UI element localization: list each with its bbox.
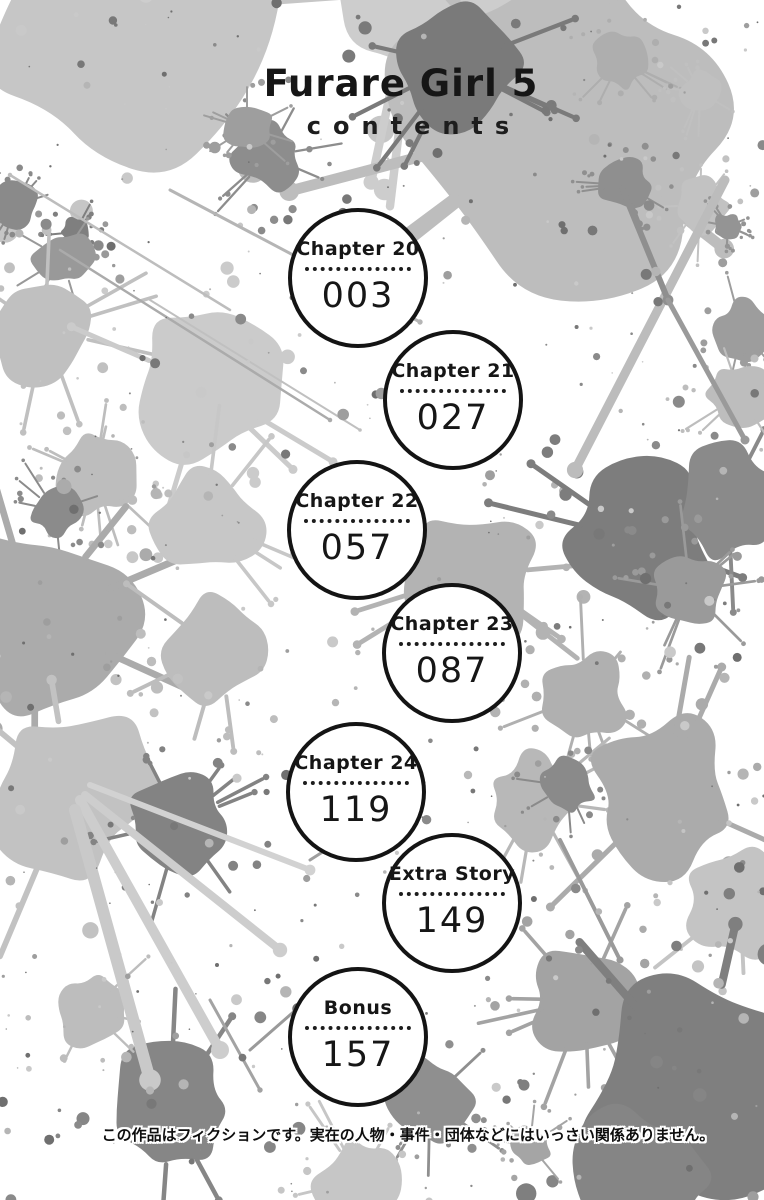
dotted-divider: [303, 781, 409, 785]
chapter-label: Bonus: [324, 997, 392, 1019]
manga-contents-page: Furare Girl 5 contents Chapter 20003Chap…: [0, 0, 764, 1200]
toc-entry-circle: Bonus157: [288, 967, 428, 1107]
toc-entry-circle: Chapter 23087: [382, 583, 522, 723]
chapter-page-number: 157: [322, 1038, 395, 1073]
chapter-label: Chapter 23: [390, 613, 513, 635]
dotted-divider: [400, 389, 506, 393]
chapter-page-number: 149: [416, 904, 489, 939]
toc-entry-circle: Chapter 24119: [286, 722, 426, 862]
footer: この作品はフィクションです。実在の人物・事件・団体などにはいっさい関係ありません…: [26, 1124, 764, 1145]
disclaimer-text: この作品はフィクションです。実在の人物・事件・団体などにはいっさい関係ありません…: [102, 1126, 715, 1144]
chapter-page-number: 027: [417, 401, 490, 436]
chapter-label: Chapter 21: [391, 360, 514, 382]
chapter-page-number: 119: [320, 793, 393, 828]
chapter-label: Chapter 24: [294, 752, 417, 774]
chapter-page-number: 057: [321, 531, 394, 566]
dotted-divider: [305, 267, 411, 271]
dotted-divider: [305, 1026, 411, 1030]
toc-entry-circle: Chapter 22057: [287, 460, 427, 600]
dotted-divider: [399, 642, 505, 646]
chapter-label: Extra Story: [389, 863, 515, 885]
dotted-divider: [304, 519, 410, 523]
dotted-divider: [399, 892, 505, 896]
chapter-label: Chapter 20: [296, 238, 419, 260]
toc-entry-circle: Chapter 21027: [383, 330, 523, 470]
toc-entry-circle: Extra Story149: [382, 833, 522, 973]
chapter-page-number: 087: [416, 654, 489, 689]
chapter-page-number: 003: [322, 279, 395, 314]
toc-entry-circle: Chapter 20003: [288, 208, 428, 348]
chapter-label: Chapter 22: [295, 490, 418, 512]
